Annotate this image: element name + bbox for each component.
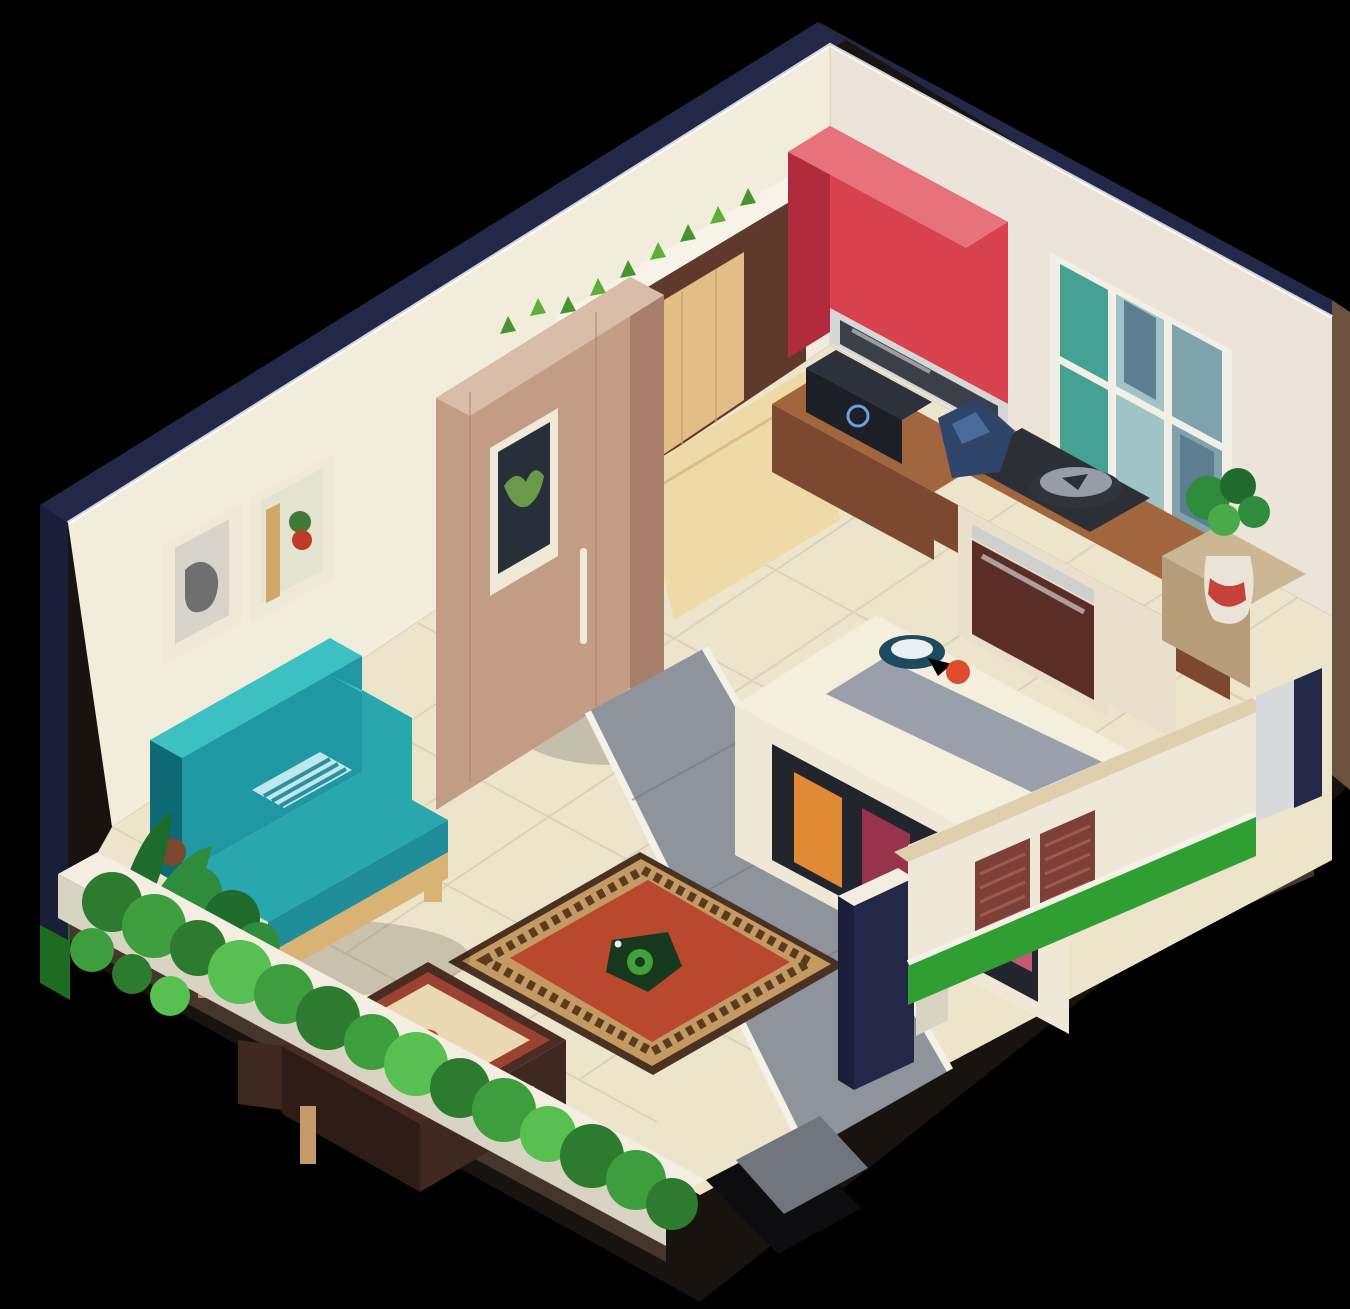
wardrobe-side xyxy=(630,277,664,706)
illustration-canvas: Isometric cutaway illustration of a smal… xyxy=(0,0,1350,1309)
corner-light-band xyxy=(1256,680,1294,822)
still-life-red xyxy=(292,530,312,550)
sofa-leg xyxy=(424,862,442,902)
table-bench xyxy=(238,1040,282,1110)
hedge-bush xyxy=(646,1178,698,1230)
plant-leaves xyxy=(1208,504,1240,536)
gate-post-side xyxy=(838,896,854,1090)
plant-leaves xyxy=(1238,496,1270,528)
hedge-bush-outer xyxy=(70,928,114,972)
hedge-bush-outer xyxy=(112,954,152,994)
rug-white-dot xyxy=(615,941,622,948)
still-life-column xyxy=(266,503,280,603)
wardrobe-handle xyxy=(580,548,587,644)
fruit-bowl-inner xyxy=(891,639,933,659)
isometric-house-illustration xyxy=(0,0,1350,1309)
gate-post xyxy=(854,878,914,1090)
table-leg xyxy=(300,1106,316,1164)
still-life-green xyxy=(289,511,311,533)
corner-navy-band xyxy=(1294,668,1322,808)
hedge-bush-outer xyxy=(150,976,190,1016)
outer-brown-band-right xyxy=(1332,300,1350,790)
fruit-red xyxy=(946,660,970,684)
rug-swirl-core xyxy=(635,957,645,967)
